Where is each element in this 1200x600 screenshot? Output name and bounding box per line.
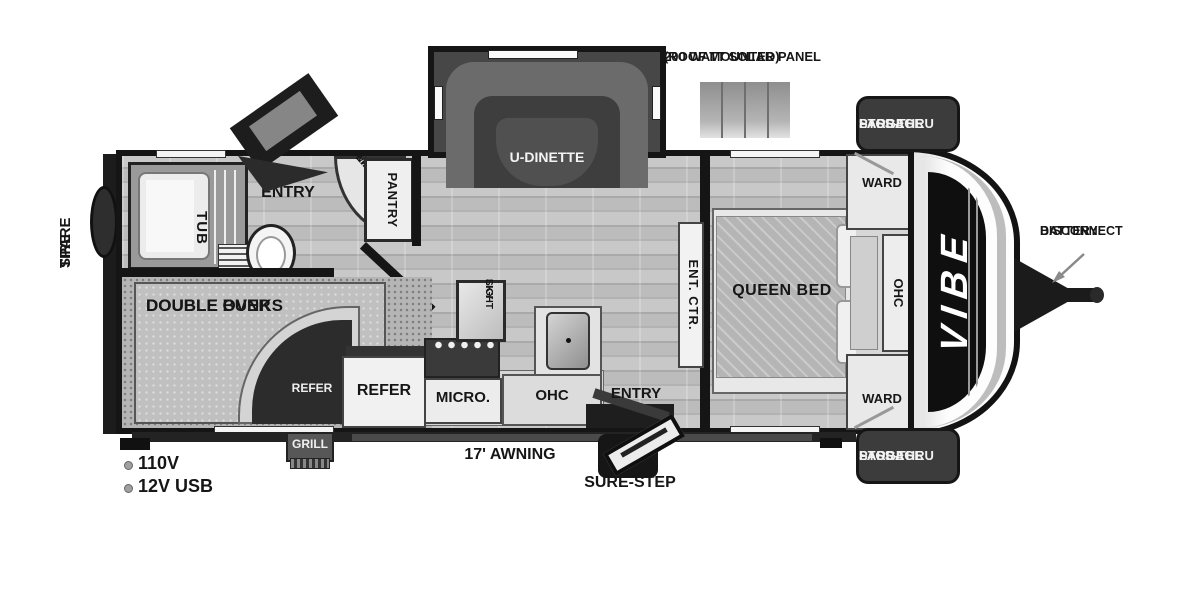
bath-wall-bottom xyxy=(122,268,334,277)
pantry-label: PANTRY xyxy=(379,158,399,242)
awning-label: 17' AWNING xyxy=(450,446,570,464)
dinette-window-left xyxy=(434,86,443,120)
refer-top-face xyxy=(346,346,430,356)
bath-window xyxy=(156,150,226,158)
main-entry-label: ENTRY xyxy=(600,386,672,404)
refer-under-bunk-label: REFER xyxy=(282,382,342,398)
tub-label: TUB xyxy=(189,198,209,258)
dinette-window-right xyxy=(652,86,661,120)
spare-tire-label: SPARE TIRE xyxy=(58,178,102,268)
skylight-label: SKY LIGHT xyxy=(468,279,494,339)
u-dinette-label: U-DINETTE xyxy=(492,150,602,166)
vibe-logo: VIBE xyxy=(934,177,978,403)
frame-foot-left xyxy=(120,438,150,450)
sure-step-label: SURE-STEP xyxy=(570,474,690,494)
bunks-label: DOUBLE OVER DOUBLE BUNKS xyxy=(146,296,356,340)
grill-label: GRILL xyxy=(286,438,334,452)
front-cap: VIBE xyxy=(908,146,1020,438)
floorplan-diagram: SPARE TIRE TUB ENTRY MED. LAV PANTRY REF… xyxy=(0,0,1200,600)
power-110v-label: 110V xyxy=(138,453,208,473)
rear-entry-label: ENTRY xyxy=(246,184,330,204)
ward-bottom-label: WARD xyxy=(848,392,916,408)
sink-faucet xyxy=(566,338,571,343)
battery-arrow xyxy=(1048,250,1090,288)
power-110v-dot xyxy=(124,461,133,470)
pantry-wall-right xyxy=(412,156,421,246)
storage-badge-bottom: LARGE PASS-THRU STORAGE xyxy=(856,428,960,484)
micro-label: MICRO. xyxy=(424,390,502,408)
hitch-ball xyxy=(1090,287,1104,303)
queen-bed-label: QUEEN BED xyxy=(722,282,842,302)
ward-top-label: WARD xyxy=(848,176,916,192)
tub-basin-inner xyxy=(146,180,194,252)
grill-hatch xyxy=(290,458,330,469)
solar-panel-label: 200 WATT SOLAR PANEL (ROOF MOUNTED) xyxy=(664,50,830,82)
frame-foot-right xyxy=(820,438,842,448)
power-12v-dot xyxy=(124,484,133,493)
storage-badge-top: LARGE PASS-THRU STORAGE xyxy=(856,96,960,152)
power-12v-label: 12V USB xyxy=(138,476,248,496)
bed-headboard xyxy=(850,236,878,350)
awning-roller xyxy=(352,434,812,441)
ent-ctr-label: ENT. CTR. xyxy=(682,225,700,365)
dinette-window-top xyxy=(488,50,578,59)
bedroom-window-top xyxy=(730,150,820,158)
solar-panel-graphic xyxy=(700,82,790,138)
refer-label: REFER xyxy=(344,382,424,400)
bedroom-ohc-label: OHC xyxy=(889,263,905,323)
